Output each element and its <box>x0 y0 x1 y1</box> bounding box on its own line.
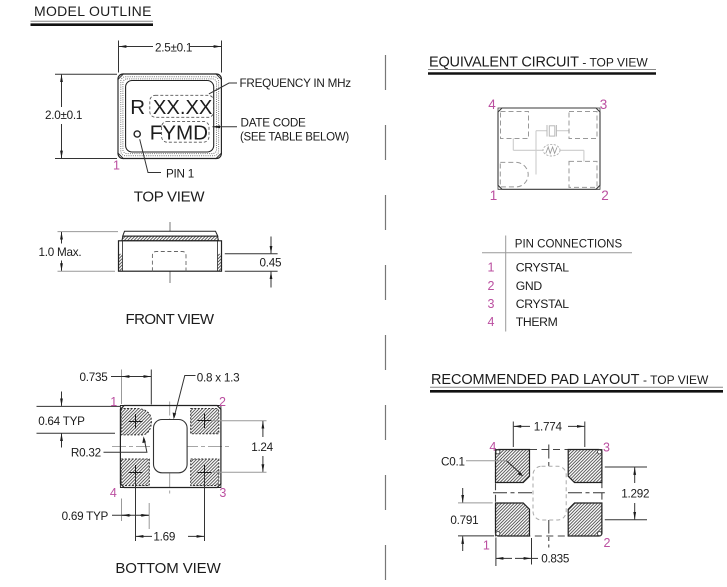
svg-text:3: 3 <box>488 297 495 311</box>
svg-text:2: 2 <box>601 188 609 203</box>
svg-text:3: 3 <box>603 441 610 455</box>
svg-text:TOP VIEW: TOP VIEW <box>134 188 206 205</box>
svg-text:1: 1 <box>110 395 117 409</box>
svg-text:4: 4 <box>488 97 496 112</box>
svg-text:2.5±0.1: 2.5±0.1 <box>155 41 192 54</box>
svg-text:BOTTOM VIEW: BOTTOM VIEW <box>115 560 221 577</box>
svg-text:0.45: 0.45 <box>260 257 282 270</box>
svg-text:FREQUENCY IN MHz: FREQUENCY IN MHz <box>240 77 352 90</box>
svg-text:FYMD: FYMD <box>150 121 208 144</box>
svg-text:0.64 TYP: 0.64 TYP <box>38 415 85 428</box>
svg-text:PIN 1: PIN 1 <box>166 167 194 180</box>
svg-text:0.835: 0.835 <box>541 553 570 566</box>
svg-text:CRYSTAL: CRYSTAL <box>516 297 570 311</box>
svg-text:DATE CODE: DATE CODE <box>241 117 307 130</box>
svg-text:4: 4 <box>489 440 496 454</box>
svg-text:GND: GND <box>516 279 543 293</box>
svg-text:EQUIVALENT CIRCUIT - TOP VIEW: EQUIVALENT CIRCUIT - TOP VIEW <box>429 55 648 71</box>
svg-text:0.791: 0.791 <box>450 514 478 527</box>
svg-text:R: R <box>130 96 145 119</box>
svg-text:0.735: 0.735 <box>80 371 109 384</box>
svg-text:C0.1: C0.1 <box>441 455 465 468</box>
svg-text:1: 1 <box>483 539 490 553</box>
svg-text:R0.32: R0.32 <box>71 446 101 459</box>
svg-text:1.774: 1.774 <box>534 420 563 433</box>
svg-text:(SEE TABLE BELOW): (SEE TABLE BELOW) <box>240 131 349 143</box>
svg-text:PIN CONNECTIONS: PIN CONNECTIONS <box>515 239 623 251</box>
svg-text:0.69 TYP: 0.69 TYP <box>62 510 109 523</box>
svg-text:2.0±0.1: 2.0±0.1 <box>45 109 82 122</box>
svg-text:CRYSTAL: CRYSTAL <box>516 261 570 275</box>
svg-text:4: 4 <box>110 486 117 500</box>
svg-text:2: 2 <box>219 395 226 409</box>
svg-text:3: 3 <box>219 486 226 500</box>
svg-text:3: 3 <box>600 97 608 112</box>
svg-text:4: 4 <box>488 315 495 329</box>
svg-text:1: 1 <box>113 158 120 172</box>
svg-text:MODEL OUTLINE: MODEL OUTLINE <box>34 3 152 19</box>
svg-text:1.24: 1.24 <box>251 441 273 454</box>
svg-text:1: 1 <box>488 261 495 275</box>
svg-text:2: 2 <box>604 536 611 550</box>
svg-text:1.0 Max.: 1.0 Max. <box>39 246 82 259</box>
svg-text:THERM: THERM <box>516 315 558 329</box>
svg-text:1.292: 1.292 <box>621 488 649 501</box>
svg-text:1: 1 <box>490 188 498 203</box>
svg-text:FRONT VIEW: FRONT VIEW <box>126 311 215 328</box>
svg-text:2: 2 <box>488 279 495 293</box>
svg-text:1.69: 1.69 <box>153 531 175 544</box>
svg-text:XX.XX: XX.XX <box>153 96 213 119</box>
svg-text:0.8 x 1.3: 0.8 x 1.3 <box>197 372 240 385</box>
svg-text:RECOMMENDED PAD LAYOUT - TOP V: RECOMMENDED PAD LAYOUT - TOP VIEW <box>431 372 709 388</box>
